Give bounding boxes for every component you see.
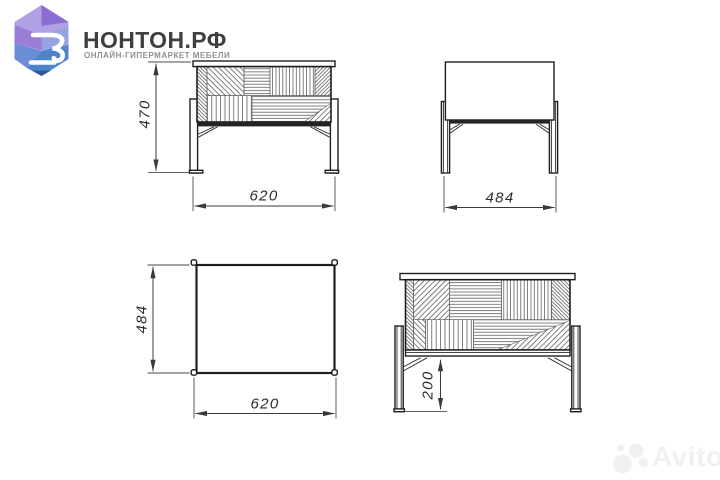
page: НОНТОН.РФ ОНЛАЙН-ГИПЕРМАРКЕТ МЕБЕЛИ (0, 0, 720, 480)
dim-front-width: 620 (250, 188, 279, 205)
dim-front-height: 470 (137, 100, 154, 129)
front-view (148, 61, 339, 211)
technical-drawing (0, 0, 720, 480)
avito-logo-icon (610, 440, 650, 474)
dim-shelf-height: 200 (420, 371, 437, 400)
plan-view (148, 260, 338, 419)
watermark-text: Avito (652, 443, 720, 471)
dim-plan-depth: 484 (134, 305, 151, 334)
dim-plan-width: 620 (251, 396, 280, 413)
watermark: Avito (610, 440, 720, 474)
dim-side-depth: 484 (486, 190, 515, 207)
